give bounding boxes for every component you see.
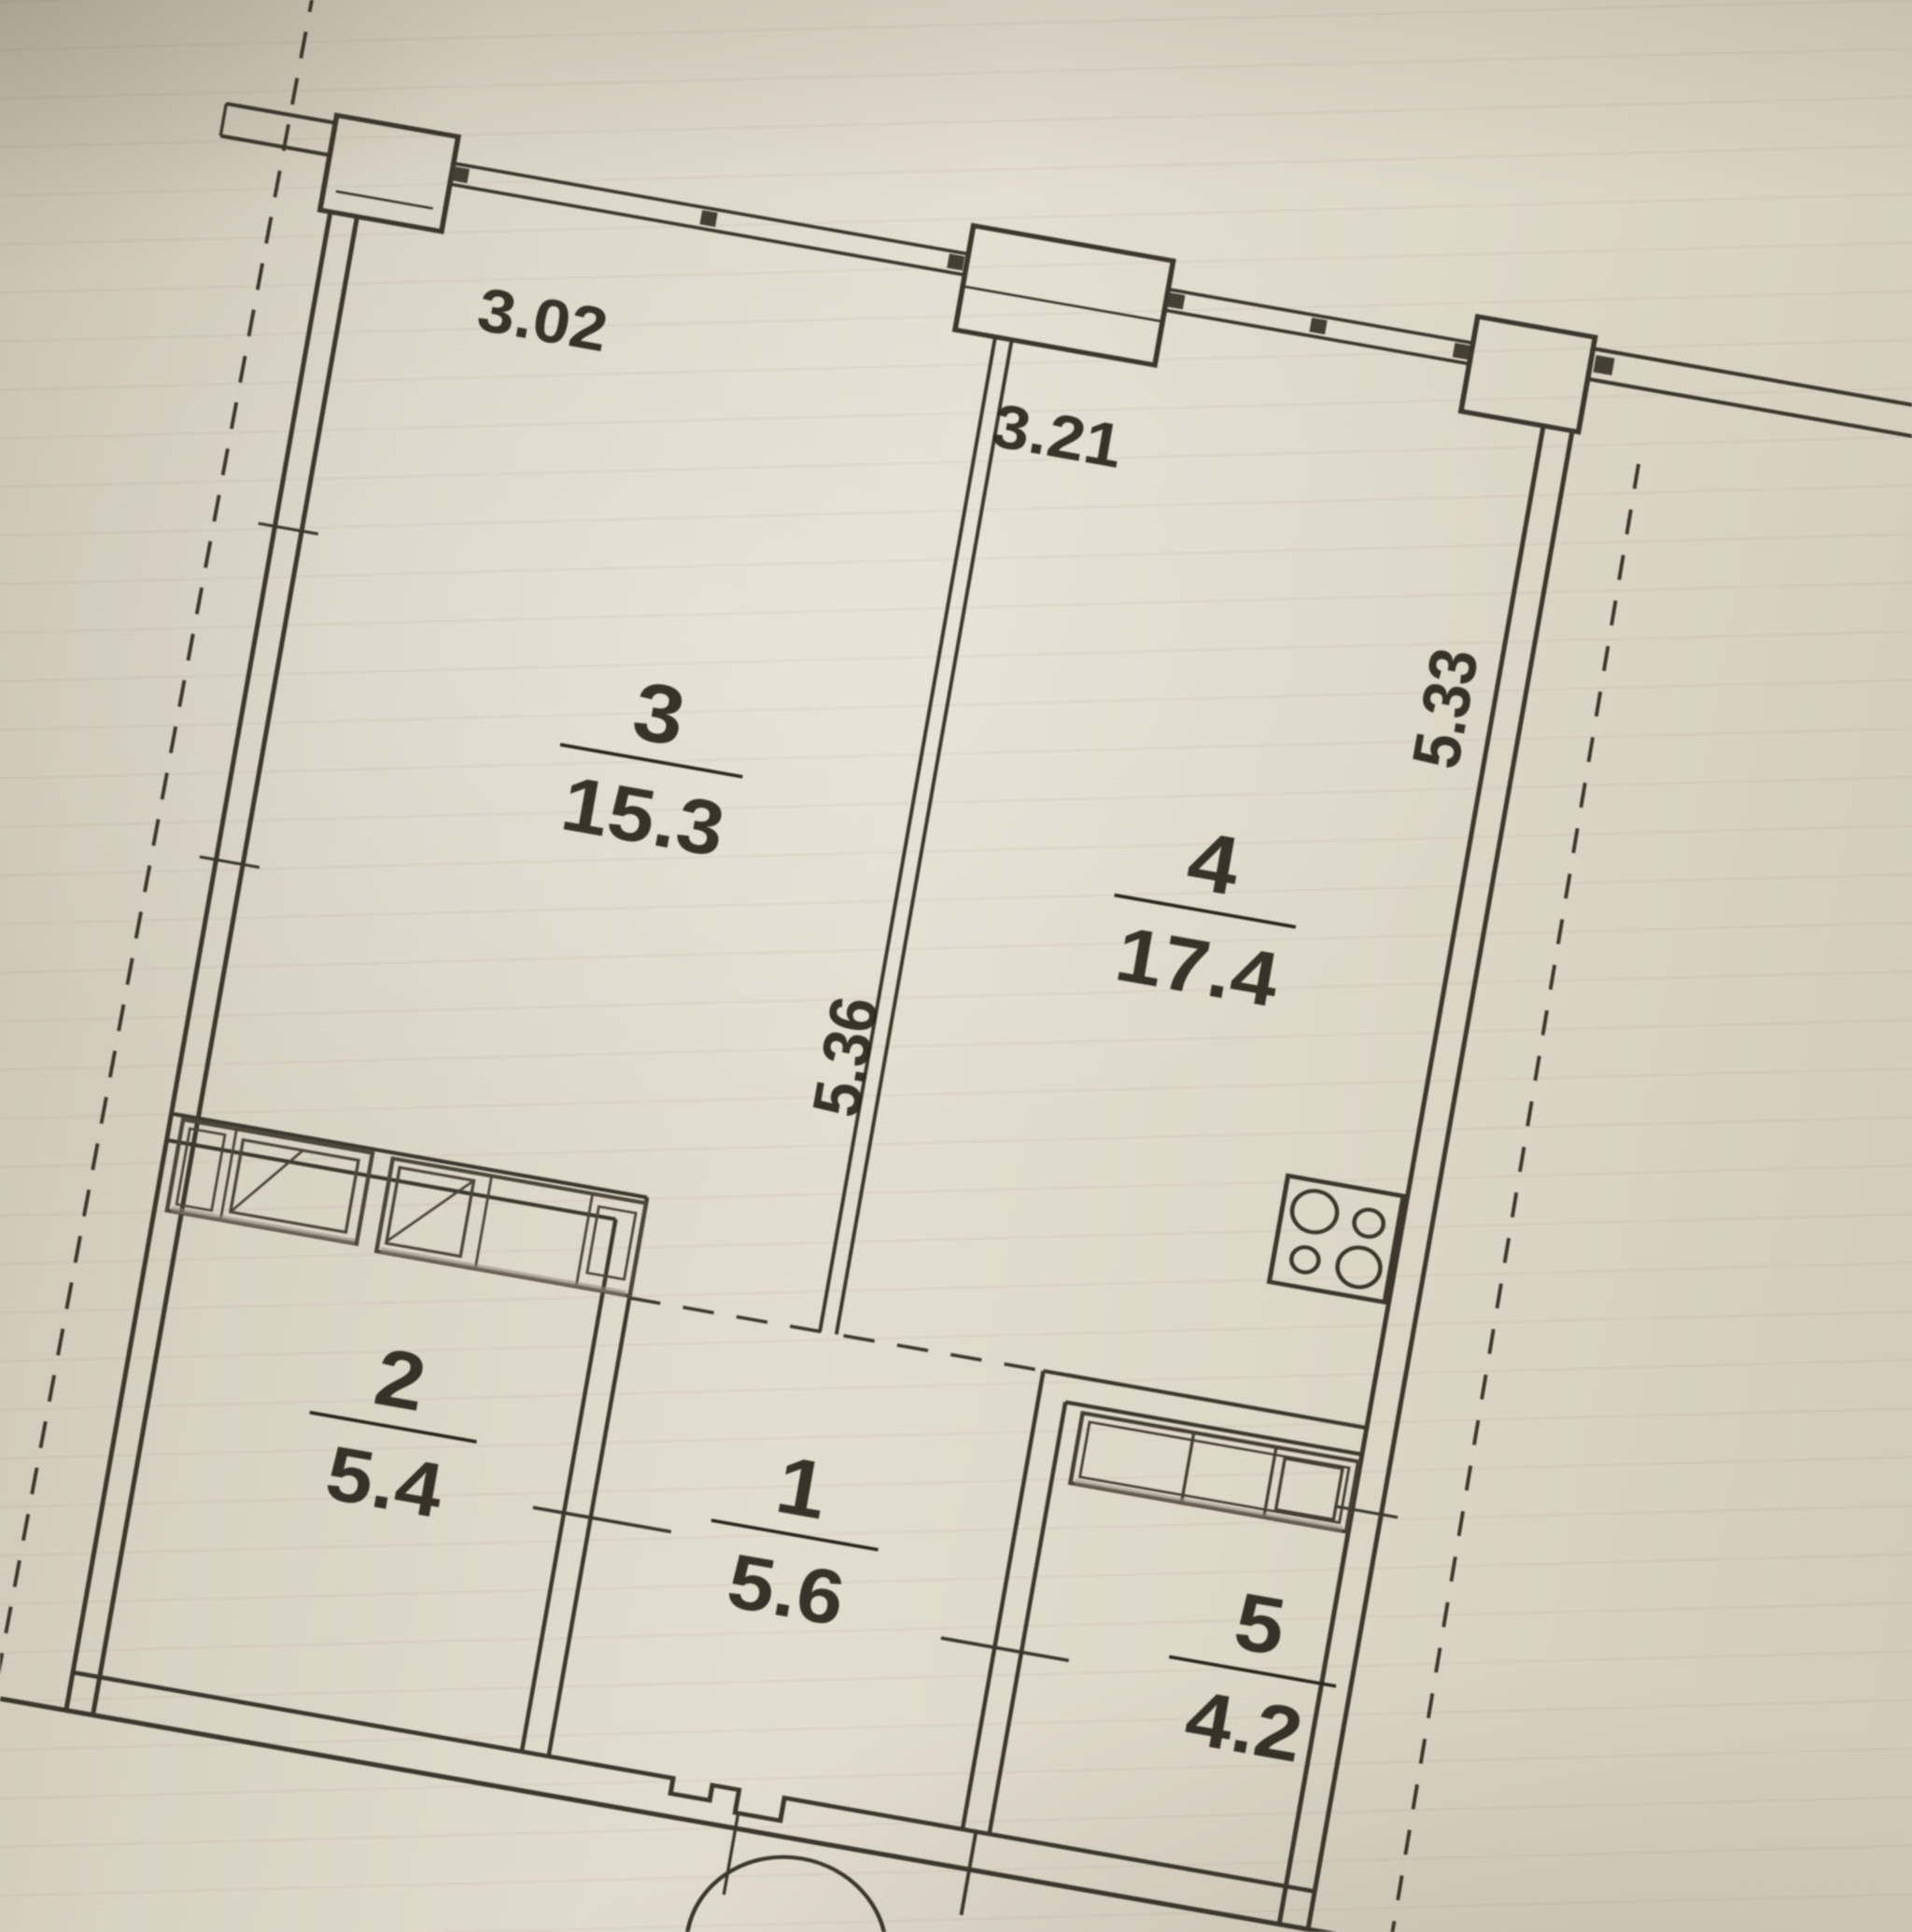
door-opening-tick bbox=[533, 1507, 671, 1531]
wall-line bbox=[1279, 426, 1543, 1925]
neighbor-wall-stub bbox=[220, 135, 330, 155]
room-area: 15.3 bbox=[555, 760, 731, 873]
wall-joint-tick bbox=[200, 857, 260, 867]
room-area: 4.2 bbox=[1179, 1674, 1309, 1779]
bathtub-divider bbox=[1264, 1447, 1276, 1517]
room-label-room1: 1 5.6 bbox=[694, 1429, 893, 1646]
room-label-room3: 3 15.3 bbox=[543, 652, 759, 875]
neighbor-wall-stub bbox=[1588, 379, 1912, 444]
wall-joint-tick bbox=[259, 524, 318, 534]
wall-joint bbox=[1593, 355, 1614, 375]
vent-shaft-icon bbox=[167, 1120, 373, 1244]
window-joint bbox=[1167, 292, 1185, 309]
dimension-room4-width: 3.21 bbox=[988, 390, 1128, 481]
room-area: 5.4 bbox=[320, 1430, 450, 1534]
room-label-room4: 4 17.4 bbox=[1097, 801, 1312, 1025]
room-number: 5 bbox=[1228, 1576, 1291, 1673]
bathtub-outline bbox=[1070, 1413, 1358, 1531]
wall-line bbox=[836, 340, 1012, 1334]
room-number: 3 bbox=[626, 663, 692, 763]
wall-line-inner-with-entrance-notch bbox=[69, 1672, 1314, 1914]
wall-line bbox=[820, 337, 995, 1332]
site-boundary-dashed-left bbox=[0, 0, 323, 1871]
stove-burner-small bbox=[1352, 1207, 1385, 1239]
wall-pier-left bbox=[320, 115, 458, 231]
window-joint bbox=[1453, 343, 1470, 360]
room-number: 1 bbox=[770, 1439, 834, 1536]
room-area: 5.6 bbox=[722, 1538, 851, 1643]
wall-line bbox=[66, 212, 330, 1711]
stove-burner-large bbox=[1334, 1244, 1384, 1290]
window-line bbox=[454, 163, 968, 254]
window-room4-icon bbox=[1164, 289, 1472, 364]
dashed-line bbox=[0, 0, 323, 1871]
neighbor-wall-stub-cap bbox=[220, 104, 226, 135]
wall-line bbox=[1065, 1403, 1362, 1455]
partition-room3-room4 bbox=[820, 337, 1011, 1334]
vent-shading bbox=[172, 1209, 355, 1242]
wall-line bbox=[172, 1114, 648, 1198]
vent-shaft-icon bbox=[376, 1159, 646, 1296]
room-label-room2: 2 5.4 bbox=[292, 1321, 492, 1539]
vent-divider bbox=[475, 1176, 492, 1268]
window-line bbox=[1168, 289, 1472, 344]
room-number: 2 bbox=[369, 1332, 432, 1429]
room-area: 17.4 bbox=[1110, 911, 1286, 1024]
dimension-room4-depth: 5.33 bbox=[1399, 642, 1493, 773]
window-line bbox=[450, 184, 964, 275]
bathtub-divider bbox=[1182, 1432, 1194, 1502]
wall-line-outer bbox=[0, 1699, 1600, 1932]
window-joint bbox=[700, 210, 718, 227]
neighbor-wall-stub bbox=[226, 104, 335, 123]
site-boundary-dashed-right bbox=[1336, 464, 1652, 1932]
dimension-room3-width: 3.02 bbox=[472, 275, 612, 365]
wall-joint-tick bbox=[1336, 1506, 1398, 1517]
wall-pier-middle bbox=[955, 226, 1174, 365]
pier-detail bbox=[336, 191, 433, 208]
stove-icon bbox=[1270, 1176, 1404, 1302]
window-joint bbox=[947, 254, 964, 271]
window-line bbox=[1164, 310, 1469, 364]
wall-line bbox=[522, 1220, 616, 1752]
wall-pier-right bbox=[1461, 317, 1596, 432]
wall-line bbox=[1044, 1371, 1367, 1428]
bathtub-end-box bbox=[1276, 1459, 1343, 1520]
window-room3-icon bbox=[450, 163, 968, 275]
bathtub-icon bbox=[1070, 1413, 1358, 1531]
room-number: 4 bbox=[1181, 813, 1246, 913]
stove-burner-small bbox=[1289, 1245, 1320, 1274]
floor-plan-drawing: 3.02 3.21 5.36 5.33 3 15.3 4 17.4 2 5.4 … bbox=[0, 0, 1912, 1932]
floor-plan-photo: { "paper": { "kind": "photographed apart… bbox=[0, 0, 1912, 1932]
stamp-circle-icon bbox=[671, 1841, 901, 1932]
neighbor-wall-stub bbox=[1593, 348, 1912, 414]
bottom-wall bbox=[0, 1661, 1607, 1932]
door-opening-tick bbox=[941, 1638, 1069, 1660]
stove-burner-large bbox=[1289, 1188, 1341, 1236]
stove-outline bbox=[1270, 1176, 1404, 1302]
window-joint bbox=[452, 166, 470, 183]
pier-detail bbox=[963, 287, 1162, 322]
dashed-line bbox=[1336, 464, 1652, 1932]
window-joint bbox=[1309, 317, 1327, 334]
wall-crossing-line bbox=[962, 1832, 977, 1915]
bathtub-shading bbox=[1075, 1482, 1343, 1530]
